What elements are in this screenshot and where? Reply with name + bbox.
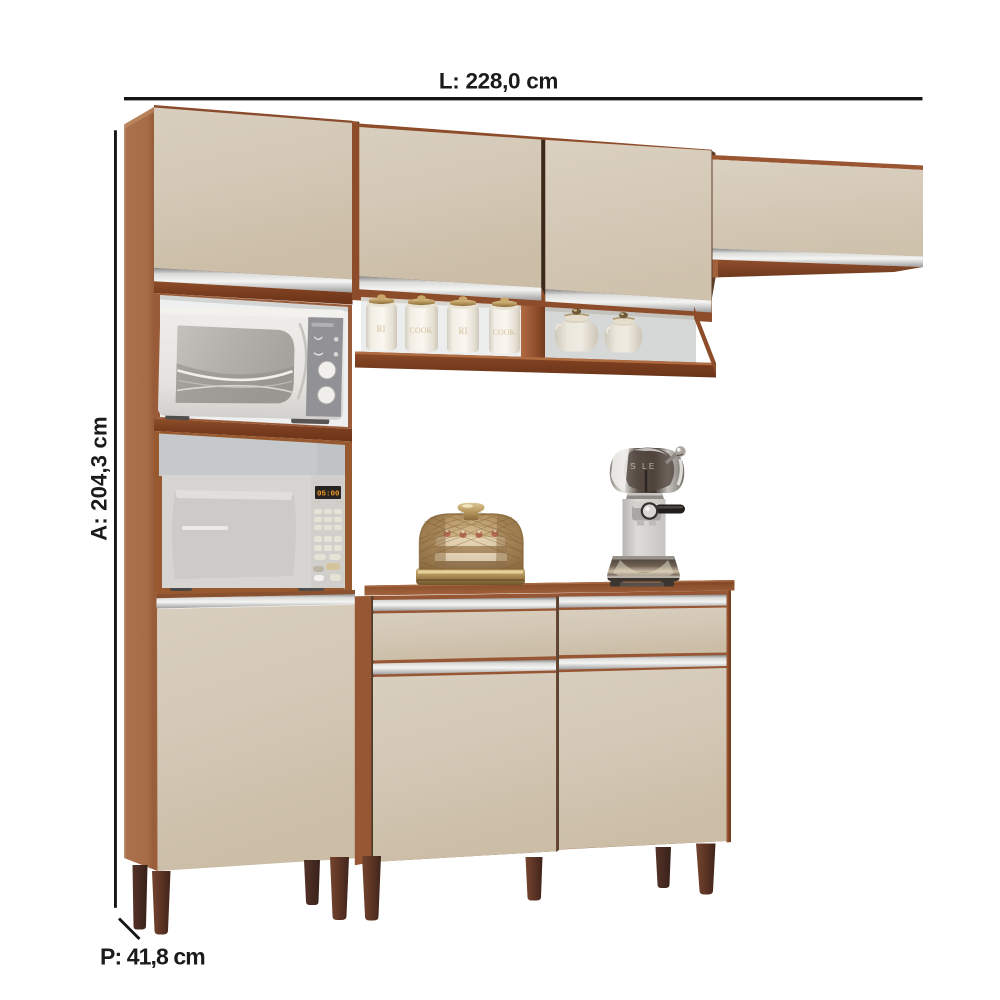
svg-text:COOK: COOK <box>493 328 516 337</box>
svg-text:RI: RI <box>377 324 386 334</box>
svg-text:P: 41,8 cm: P: 41,8 cm <box>100 944 205 970</box>
svg-text:RI: RI <box>459 326 468 336</box>
svg-text:S LE: S LE <box>630 461 656 471</box>
svg-text:05:00: 05:00 <box>317 491 340 499</box>
svg-text:A: 204,3 cm: A: 204,3 cm <box>87 416 112 541</box>
svg-text:L: 228,0 cm: L: 228,0 cm <box>439 69 558 94</box>
svg-text:COOK: COOK <box>410 326 433 335</box>
